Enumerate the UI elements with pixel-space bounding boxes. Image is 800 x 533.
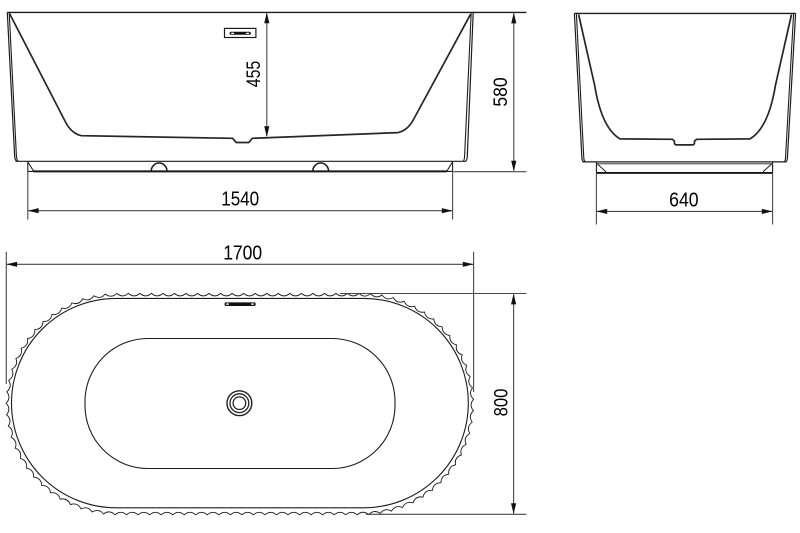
svg-text:1540: 1540 [221,189,259,211]
svg-text:455: 455 [244,61,265,88]
svg-text:640: 640 [669,189,699,211]
svg-text:580: 580 [491,77,512,106]
svg-text:800: 800 [492,389,513,417]
svg-text:1700: 1700 [223,243,262,265]
